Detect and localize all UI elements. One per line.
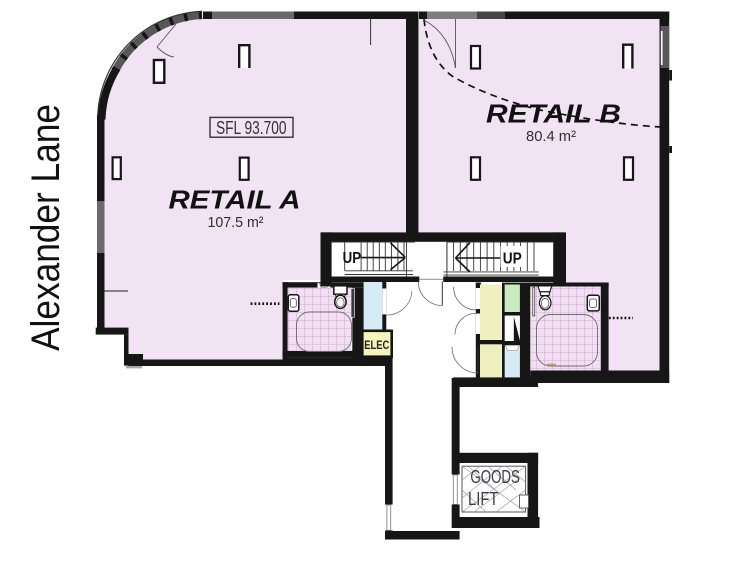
svg-text:LIFT: LIFT: [468, 489, 499, 509]
svg-text:80.4 m²: 80.4 m²: [526, 128, 576, 145]
svg-text:SFL 93.700: SFL 93.700: [216, 118, 287, 138]
svg-text:107.5 m²: 107.5 m²: [208, 214, 264, 231]
svg-text:UP: UP: [343, 250, 362, 267]
svg-text:UP: UP: [503, 251, 522, 268]
svg-text:ELEC: ELEC: [364, 340, 389, 352]
svg-text:GOODS: GOODS: [470, 467, 520, 487]
svg-text:Alexander Lane: Alexander Lane: [24, 104, 68, 351]
svg-text:RETAIL B: RETAIL B: [486, 101, 621, 129]
svg-text:RETAIL A: RETAIL A: [169, 187, 301, 215]
